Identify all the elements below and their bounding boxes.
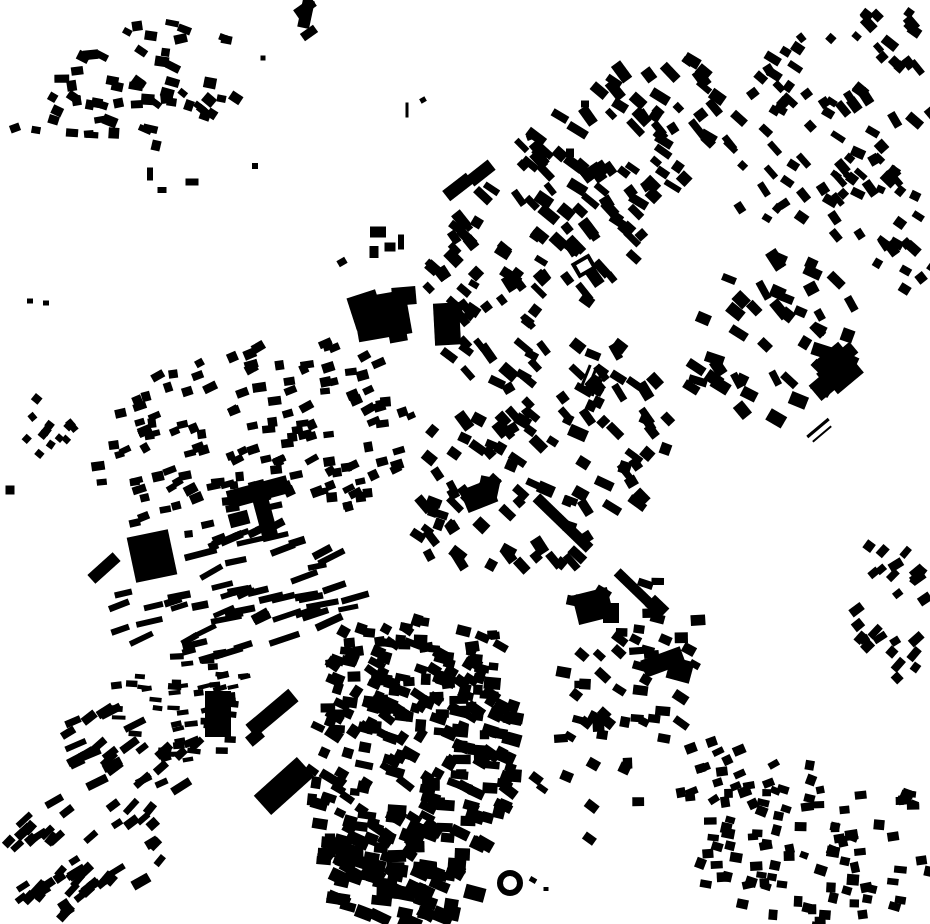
building-factory-main-c xyxy=(391,286,416,306)
building xyxy=(203,76,217,89)
building xyxy=(779,46,792,58)
building xyxy=(226,351,239,364)
building xyxy=(323,431,334,438)
building xyxy=(633,624,645,634)
building xyxy=(137,685,149,691)
building xyxy=(164,76,180,88)
building-center-church-b xyxy=(477,475,501,499)
building xyxy=(343,501,354,512)
building xyxy=(168,683,182,690)
building xyxy=(375,399,385,408)
building xyxy=(733,768,746,779)
building xyxy=(505,768,522,782)
building xyxy=(488,375,506,390)
building xyxy=(96,478,107,485)
building xyxy=(252,382,267,393)
building xyxy=(716,766,728,776)
building xyxy=(113,98,124,109)
building xyxy=(225,556,247,566)
building-cluster-village-northwest xyxy=(47,19,244,152)
building xyxy=(374,636,385,648)
building xyxy=(47,91,59,103)
building xyxy=(31,393,43,405)
building xyxy=(85,774,109,791)
building xyxy=(803,280,820,296)
building xyxy=(298,400,314,414)
building xyxy=(110,624,130,636)
building xyxy=(762,789,771,796)
building xyxy=(865,125,880,138)
building xyxy=(338,604,359,613)
building xyxy=(757,181,771,197)
building xyxy=(323,456,336,467)
building xyxy=(370,246,379,258)
building xyxy=(267,417,278,428)
building xyxy=(357,350,371,363)
building xyxy=(159,505,171,514)
building xyxy=(551,108,570,124)
building xyxy=(788,391,809,410)
building xyxy=(208,663,218,670)
building-cluster-east-villas xyxy=(682,248,859,428)
building xyxy=(496,294,508,306)
building-cluster-southeast-main xyxy=(694,760,930,924)
building xyxy=(376,884,400,898)
building xyxy=(686,358,707,376)
building xyxy=(440,347,458,364)
building xyxy=(444,519,460,535)
building xyxy=(71,66,84,76)
building xyxy=(787,60,803,74)
building xyxy=(131,20,143,31)
building xyxy=(827,210,841,226)
building xyxy=(123,798,140,815)
building xyxy=(202,381,218,395)
building xyxy=(681,642,697,657)
building xyxy=(201,657,214,664)
building xyxy=(808,904,816,914)
building xyxy=(914,271,928,285)
building xyxy=(534,255,548,267)
building xyxy=(455,624,471,637)
building xyxy=(721,754,733,766)
building xyxy=(334,807,346,818)
building xyxy=(158,187,167,193)
building xyxy=(487,630,497,639)
building xyxy=(702,849,714,859)
building xyxy=(893,216,908,230)
building xyxy=(68,855,80,866)
building xyxy=(761,213,772,223)
building-ring-building xyxy=(500,873,520,893)
building xyxy=(147,168,153,181)
building xyxy=(380,623,393,636)
building xyxy=(780,804,792,814)
building xyxy=(804,120,817,133)
building xyxy=(609,370,627,386)
building xyxy=(765,408,787,428)
building xyxy=(282,409,294,419)
building xyxy=(899,546,912,559)
building xyxy=(811,801,824,808)
building xyxy=(289,470,303,480)
building xyxy=(136,616,163,628)
building xyxy=(460,365,475,381)
building xyxy=(733,201,746,215)
building xyxy=(846,874,859,886)
building xyxy=(392,446,405,456)
building xyxy=(151,470,165,482)
building xyxy=(181,660,194,666)
building xyxy=(776,880,787,888)
building xyxy=(629,92,648,111)
building xyxy=(906,646,921,662)
building xyxy=(594,182,610,197)
building xyxy=(184,530,193,538)
building xyxy=(572,203,588,219)
building xyxy=(851,618,865,632)
building-cluster-east-edge-mid xyxy=(848,539,930,684)
building xyxy=(480,300,493,313)
building xyxy=(797,335,812,350)
building xyxy=(827,271,846,290)
building xyxy=(906,790,917,797)
building-west-cross-c xyxy=(228,510,251,529)
building xyxy=(54,75,69,83)
building xyxy=(376,456,389,467)
building xyxy=(876,51,889,64)
building xyxy=(685,794,696,802)
building xyxy=(16,880,30,892)
building xyxy=(887,878,899,886)
building xyxy=(322,580,347,594)
building xyxy=(394,730,409,746)
building xyxy=(721,273,737,285)
building xyxy=(123,814,140,830)
building xyxy=(793,305,808,318)
building xyxy=(771,824,782,836)
building xyxy=(561,495,573,507)
building xyxy=(224,736,236,743)
building xyxy=(170,777,192,795)
building xyxy=(355,477,366,485)
building xyxy=(528,303,543,318)
building xyxy=(711,861,723,869)
building xyxy=(767,140,782,156)
building xyxy=(605,108,617,120)
building xyxy=(559,769,574,783)
building xyxy=(154,854,166,867)
building xyxy=(896,797,904,805)
building xyxy=(853,228,865,241)
building xyxy=(905,111,924,129)
building xyxy=(144,30,157,41)
building xyxy=(199,564,223,581)
building xyxy=(406,103,409,118)
building xyxy=(128,730,141,737)
building xyxy=(760,882,771,892)
building xyxy=(569,337,587,354)
building xyxy=(154,778,168,789)
building xyxy=(830,130,846,143)
building xyxy=(806,418,829,438)
building xyxy=(876,544,890,558)
building xyxy=(816,786,825,795)
building xyxy=(356,369,370,382)
building xyxy=(912,210,925,222)
building-sw-parallelogram xyxy=(254,757,314,815)
building-cluster-southwest-lower xyxy=(60,703,205,796)
building xyxy=(341,591,370,605)
building xyxy=(182,756,193,762)
building xyxy=(850,899,860,907)
building xyxy=(780,371,798,389)
building xyxy=(733,400,752,420)
building xyxy=(419,96,427,103)
building xyxy=(149,697,162,703)
building xyxy=(326,492,338,503)
building xyxy=(761,839,772,849)
building xyxy=(623,758,633,769)
building xyxy=(83,830,98,845)
building xyxy=(312,817,329,830)
building xyxy=(737,160,748,171)
building xyxy=(385,243,396,252)
building xyxy=(347,671,360,681)
building xyxy=(430,466,444,481)
building xyxy=(336,624,351,639)
building xyxy=(531,282,548,299)
building xyxy=(131,476,144,485)
building xyxy=(619,716,630,728)
building xyxy=(805,774,818,787)
building xyxy=(66,128,79,137)
building xyxy=(529,434,549,454)
building xyxy=(854,848,866,856)
building xyxy=(672,689,690,706)
building xyxy=(854,791,866,800)
building xyxy=(44,794,64,810)
building xyxy=(22,434,32,444)
building xyxy=(728,324,748,342)
building xyxy=(235,471,244,481)
building xyxy=(108,127,119,139)
building xyxy=(862,539,876,553)
building xyxy=(150,369,165,382)
building xyxy=(6,486,15,495)
building xyxy=(398,235,404,250)
building xyxy=(566,149,574,158)
building xyxy=(864,883,877,894)
building xyxy=(616,628,628,637)
building xyxy=(594,475,615,491)
building xyxy=(908,631,925,647)
building xyxy=(606,422,625,441)
building xyxy=(651,578,664,585)
building xyxy=(129,631,154,647)
building xyxy=(288,536,306,549)
building xyxy=(320,387,330,394)
building xyxy=(274,360,284,371)
building xyxy=(555,666,571,679)
building xyxy=(197,683,211,691)
building xyxy=(310,721,325,733)
building xyxy=(819,910,831,920)
building xyxy=(590,81,609,100)
building xyxy=(795,822,807,831)
building xyxy=(94,99,109,110)
figure-ground-map xyxy=(0,0,930,924)
building xyxy=(184,546,218,561)
building xyxy=(528,771,544,786)
building xyxy=(891,657,906,673)
building xyxy=(894,185,906,198)
building xyxy=(61,435,71,445)
building xyxy=(712,746,725,757)
building xyxy=(131,100,143,108)
building xyxy=(211,477,225,487)
building xyxy=(114,589,133,599)
building xyxy=(162,465,177,476)
building xyxy=(171,501,182,511)
building xyxy=(829,228,843,243)
building xyxy=(336,257,347,268)
building xyxy=(780,175,795,189)
building xyxy=(586,757,602,772)
building xyxy=(757,337,773,353)
building xyxy=(176,420,188,429)
building xyxy=(118,445,131,456)
building xyxy=(111,818,123,829)
building xyxy=(750,861,763,871)
building xyxy=(168,369,178,378)
building xyxy=(227,684,238,690)
building xyxy=(332,468,343,478)
building xyxy=(657,733,671,744)
building xyxy=(812,426,832,443)
building xyxy=(216,94,226,103)
building xyxy=(720,822,733,835)
building xyxy=(355,760,374,771)
building xyxy=(886,568,900,582)
building xyxy=(800,88,813,101)
building xyxy=(924,105,930,124)
building xyxy=(844,829,858,841)
building xyxy=(704,817,717,824)
building xyxy=(216,747,228,754)
building xyxy=(122,27,133,37)
building xyxy=(170,653,184,660)
building xyxy=(319,376,332,388)
building xyxy=(233,640,253,652)
building xyxy=(260,454,272,463)
building xyxy=(482,782,498,794)
building xyxy=(724,789,733,798)
building xyxy=(421,450,438,467)
building xyxy=(857,909,868,919)
building xyxy=(844,295,859,313)
building xyxy=(341,747,354,760)
building xyxy=(732,743,747,756)
building xyxy=(887,111,902,129)
building xyxy=(574,647,589,662)
building-cluster-northeast-corridor xyxy=(422,52,727,381)
building xyxy=(194,358,205,369)
building xyxy=(724,840,736,851)
building xyxy=(167,705,179,710)
building xyxy=(712,777,723,787)
building xyxy=(370,227,386,238)
building xyxy=(173,33,188,45)
building xyxy=(640,66,657,83)
building xyxy=(362,385,374,396)
building xyxy=(850,187,866,200)
building xyxy=(108,598,130,612)
building xyxy=(528,358,542,373)
building xyxy=(825,33,836,44)
building xyxy=(106,75,120,86)
building xyxy=(331,724,345,733)
building xyxy=(227,405,241,417)
building xyxy=(758,123,773,137)
building xyxy=(472,516,490,534)
building xyxy=(43,301,49,306)
building xyxy=(398,642,410,650)
building xyxy=(443,658,456,669)
building xyxy=(850,861,861,873)
building xyxy=(129,518,141,528)
building xyxy=(161,48,171,57)
building xyxy=(135,674,145,680)
building xyxy=(193,689,203,696)
building xyxy=(746,87,760,101)
building xyxy=(833,833,845,843)
building xyxy=(514,138,529,153)
building xyxy=(367,469,380,482)
building xyxy=(786,159,800,172)
building-cluster-southwest-corner xyxy=(2,794,166,923)
building xyxy=(740,386,759,403)
building xyxy=(460,816,475,827)
building xyxy=(592,721,604,732)
building xyxy=(228,91,244,106)
building xyxy=(660,62,681,83)
building xyxy=(197,429,207,439)
building xyxy=(632,685,648,696)
building xyxy=(708,794,720,805)
building xyxy=(186,179,199,186)
building xyxy=(566,121,589,140)
building xyxy=(246,421,258,430)
building xyxy=(707,834,719,842)
building xyxy=(468,279,480,289)
building xyxy=(252,163,258,169)
building xyxy=(690,614,705,626)
building xyxy=(201,92,217,108)
building xyxy=(611,644,627,660)
building xyxy=(134,45,148,58)
building xyxy=(916,855,928,865)
building xyxy=(569,688,583,702)
building xyxy=(355,491,366,502)
building xyxy=(108,440,119,450)
building-sw-diagonal-slab xyxy=(245,689,298,737)
building-cluster-east-band-south xyxy=(528,769,644,845)
building xyxy=(898,282,912,296)
building-cluster-city-center xyxy=(409,337,675,574)
building xyxy=(632,797,644,806)
building xyxy=(64,738,87,752)
